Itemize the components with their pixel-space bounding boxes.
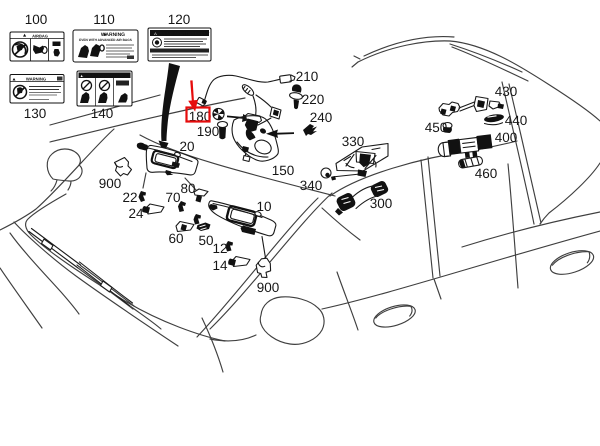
svg-text:60: 60 — [168, 231, 183, 246]
svg-text:150: 150 — [272, 163, 295, 178]
svg-text:20: 20 — [179, 139, 194, 154]
svg-text:22: 22 — [122, 190, 137, 205]
svg-text:240: 240 — [310, 110, 333, 125]
svg-text:220: 220 — [302, 92, 325, 107]
svg-text:130: 130 — [24, 106, 47, 121]
svg-text:190: 190 — [197, 124, 220, 139]
svg-text:NEVER ADVANCED AIRBAG: NEVER ADVANCED AIRBAG — [82, 74, 131, 78]
svg-text:50: 50 — [198, 233, 213, 248]
svg-text:WARNING AVERTISSEMENT: WARNING AVERTISSEMENT — [153, 31, 210, 36]
svg-text:400: 400 — [495, 130, 518, 145]
svg-text:14: 14 — [212, 258, 228, 273]
svg-text:EVEN WITH ADVANCED AIR BAGS: EVEN WITH ADVANCED AIR BAGS — [79, 38, 132, 42]
svg-text:110: 110 — [93, 12, 115, 27]
svg-text:WARNING: WARNING — [26, 77, 46, 82]
svg-text:900: 900 — [99, 176, 122, 191]
svg-text:210: 210 — [296, 69, 319, 84]
svg-text:24: 24 — [128, 206, 144, 221]
svg-text:70: 70 — [165, 190, 180, 205]
svg-text:10: 10 — [256, 199, 271, 214]
svg-text:80: 80 — [180, 181, 195, 196]
svg-text:440: 440 — [505, 113, 528, 128]
svg-text:460: 460 — [475, 166, 498, 181]
svg-text:12: 12 — [212, 241, 227, 256]
svg-text:900: 900 — [257, 280, 280, 295]
svg-text:430: 430 — [495, 84, 518, 99]
svg-text:140: 140 — [91, 106, 114, 121]
svg-text:300: 300 — [370, 196, 393, 211]
svg-text:100: 100 — [25, 12, 48, 27]
svg-text:450: 450 — [425, 120, 448, 135]
svg-text:330: 330 — [342, 134, 365, 149]
svg-text:AIRBAG: AIRBAG — [32, 34, 48, 39]
svg-text:WARNING: WARNING — [101, 32, 125, 38]
svg-text:340: 340 — [300, 178, 323, 193]
svg-text:120: 120 — [168, 12, 191, 27]
